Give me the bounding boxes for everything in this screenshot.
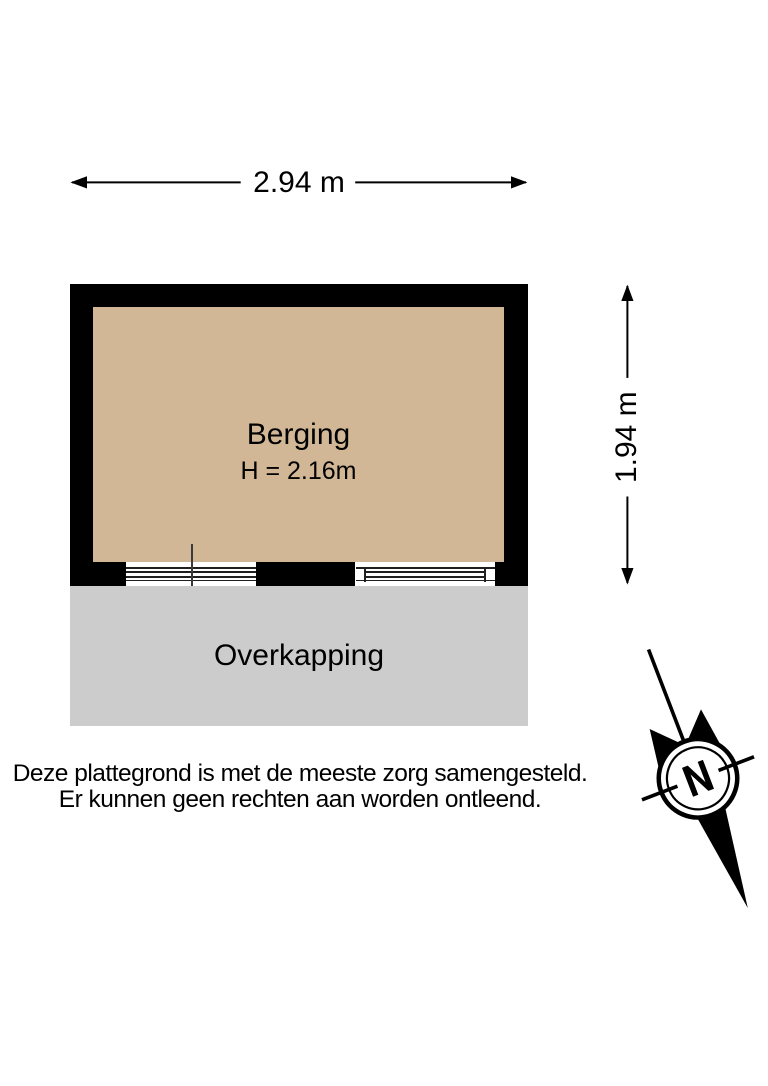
svg-text:2.94 m: 2.94 m bbox=[253, 166, 345, 199]
svg-text:1.94 m: 1.94 m bbox=[610, 391, 643, 483]
